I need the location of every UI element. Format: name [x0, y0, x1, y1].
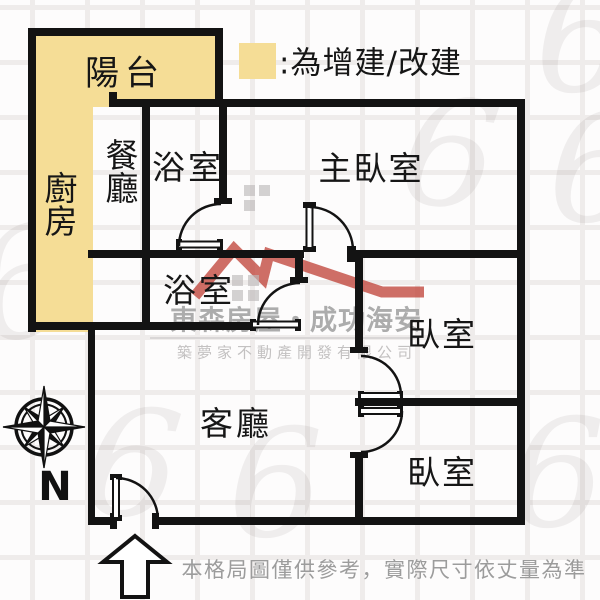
floor-plan-canvas: 6 6 6 6 6 6 6 東森房屋・成功海安 築夢家不動產開發有限公司 [0, 0, 600, 600]
room-label-balcony: 陽台 [85, 46, 165, 95]
room-label-dining: 餐廳 [95, 138, 143, 204]
wall-balcony-right [215, 28, 223, 107]
wall-mid-horizontal-left [88, 250, 304, 258]
wall-dining-bath-divider [142, 99, 150, 330]
door-swing-arc [361, 411, 402, 452]
wall-kitchen-bath2-bottom [28, 322, 253, 330]
door-entrance [110, 474, 158, 521]
wall-bedrooms-left-upper [355, 250, 363, 352]
door-jamb [350, 347, 368, 353]
wall-bottom-left [88, 517, 113, 525]
door-swing-arc [310, 207, 353, 250]
room-label-master-bedroom: 主臥室 [319, 142, 424, 190]
legend-label: :為增建/改建 [279, 38, 462, 83]
room-label-bedroom2: 臥室 [407, 446, 477, 494]
wall-bottom-right [156, 517, 525, 525]
wall-balcony-top [28, 28, 223, 36]
door-bedroom1 [358, 356, 403, 402]
door-swing-arc [179, 204, 221, 246]
room-label-kitchen: 廚房 [34, 171, 82, 237]
door-bathroom1 [176, 204, 223, 251]
door-swing-arc [116, 478, 158, 520]
disclaimer-text: 本格局圖僅供參考，實際尺寸依丈量為準 [182, 554, 587, 584]
compass-rose [3, 386, 85, 468]
wall-mid-horizontal-right [351, 250, 525, 258]
wall-unit-top [109, 99, 525, 107]
door-swing-arc [361, 356, 401, 396]
legend-highlight-swatch [239, 43, 276, 79]
wall-bedrooms-left-lower [355, 453, 363, 525]
door-swing-arc [258, 283, 300, 325]
door-jamb [347, 246, 356, 262]
door-master-bedroom [303, 202, 353, 252]
wall-outer-right [517, 99, 525, 525]
wall-living-left [88, 322, 95, 525]
room-label-living-room: 客廳 [200, 397, 272, 445]
room-label-bedroom1: 臥室 [407, 308, 477, 356]
wall-bath2-right [295, 250, 303, 281]
room-label-bathroom2: 浴室 [163, 264, 235, 312]
room-label-bathroom1: 浴室 [152, 141, 224, 189]
compass-north-label: N [38, 464, 71, 510]
door-bedroom2 [358, 406, 403, 452]
entrance-arrow [103, 536, 167, 597]
